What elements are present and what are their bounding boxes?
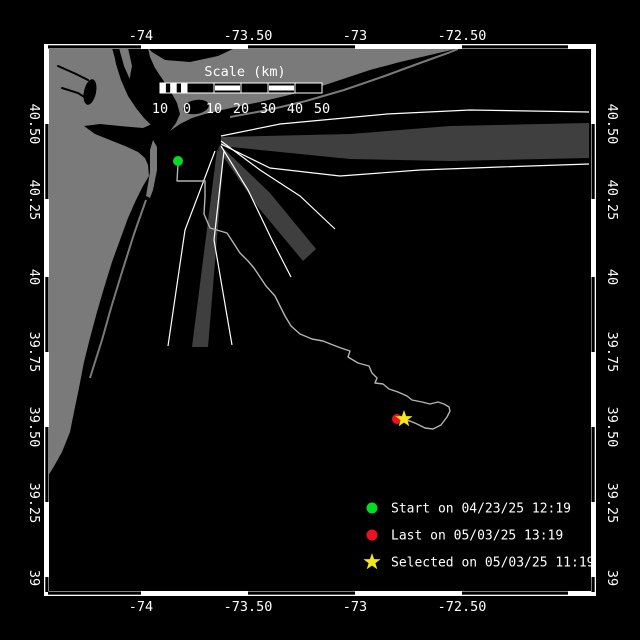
- border-zebra-top-0: [48, 45, 141, 48]
- legend-label-1: Last on 05/03/25 13:19: [391, 529, 563, 544]
- scalebar-tick-label: 20: [233, 101, 249, 117]
- border-zebra-left-0: [45, 124, 48, 199]
- x-axis-top-tick-label: -73.50: [224, 28, 273, 44]
- scalebar-subcell: [176, 83, 181, 93]
- border-zebra-left-1: [45, 277, 48, 352]
- scalebar-segment: [187, 83, 214, 93]
- border-zebra-right-0: [592, 124, 595, 199]
- border-zebra-right-3: [592, 577, 595, 592]
- y-axis-right-tick-label: 39.50: [604, 407, 620, 448]
- scalebar-segment: [295, 83, 322, 93]
- start-position-marker: [173, 156, 183, 166]
- y-axis-left-tick-label: 40: [26, 269, 42, 285]
- legend-label-0: Start on 04/23/25 12:19: [391, 502, 571, 517]
- x-axis-bottom-tick-label: -74: [129, 599, 153, 615]
- border-zebra-right-2: [592, 427, 595, 502]
- x-axis-bottom-tick-label: -73.50: [224, 599, 273, 615]
- scalebar-subcell: [160, 83, 165, 93]
- y-axis-right-tick-label: 39: [604, 570, 620, 586]
- border-zebra-left-2: [45, 427, 48, 502]
- border-zebra-right-1: [592, 277, 595, 352]
- border-zebra-top-2: [462, 45, 568, 48]
- scalebar-segment-fill: [269, 86, 294, 91]
- legend-marker-1: [367, 530, 378, 541]
- border-zebra-bottom-2: [462, 592, 568, 595]
- y-axis-right-tick-label: 40: [604, 269, 620, 285]
- x-axis-top-tick-label: -72.50: [438, 28, 487, 44]
- scalebar-tick-label: 40: [287, 101, 303, 117]
- y-axis-right-tick-label: 40.25: [604, 180, 620, 221]
- scalebar-title: Scale (km): [204, 64, 285, 80]
- legend-label-2: Selected on 05/03/25 11:19: [391, 556, 595, 571]
- map-canvas[interactable]: -74-73.50-73-72.50-74-73.50-73-72.5040.5…: [0, 0, 640, 640]
- scalebar-segment: [241, 83, 268, 93]
- y-axis-left-tick-label: 40.25: [26, 180, 42, 221]
- scalebar-segment-fill: [215, 86, 240, 91]
- scalebar-subcell: [182, 83, 187, 93]
- legend-marker-0: [367, 503, 378, 514]
- y-axis-right-tick-label: 39.75: [604, 332, 620, 373]
- y-axis-right-tick-label: 39.25: [604, 483, 620, 524]
- scalebar-tick-label: 10: [206, 101, 222, 117]
- border-zebra-bottom-0: [48, 592, 141, 595]
- x-axis-top-tick-label: -74: [129, 28, 153, 44]
- x-axis-bottom-tick-label: -72.50: [438, 599, 487, 615]
- scalebar-tick-label: 30: [260, 101, 276, 117]
- y-axis-right-tick-label: 40.50: [604, 104, 620, 145]
- y-axis-left-tick-label: 39: [26, 570, 42, 586]
- scalebar-tick-label: 10: [152, 101, 168, 117]
- drifter-track-map-window: -74-73.50-73-72.50-74-73.50-73-72.5040.5…: [0, 0, 640, 640]
- scalebar-tick-label: 50: [314, 101, 330, 117]
- x-axis-top-tick-label: -73: [343, 28, 367, 44]
- x-axis-bottom-tick-label: -73: [343, 599, 367, 615]
- y-axis-left-tick-label: 39.75: [26, 332, 42, 373]
- border-zebra-bottom-1: [248, 592, 355, 595]
- scalebar-subcell: [165, 83, 170, 93]
- y-axis-left-tick-label: 39.25: [26, 483, 42, 524]
- y-axis-left-tick-label: 39.50: [26, 407, 42, 448]
- scalebar-subcell: [171, 83, 176, 93]
- y-axis-left-tick-label: 40.50: [26, 104, 42, 145]
- border-zebra-top-1: [248, 45, 355, 48]
- border-zebra-left-3: [45, 577, 48, 592]
- scalebar-tick-label: 0: [183, 101, 191, 117]
